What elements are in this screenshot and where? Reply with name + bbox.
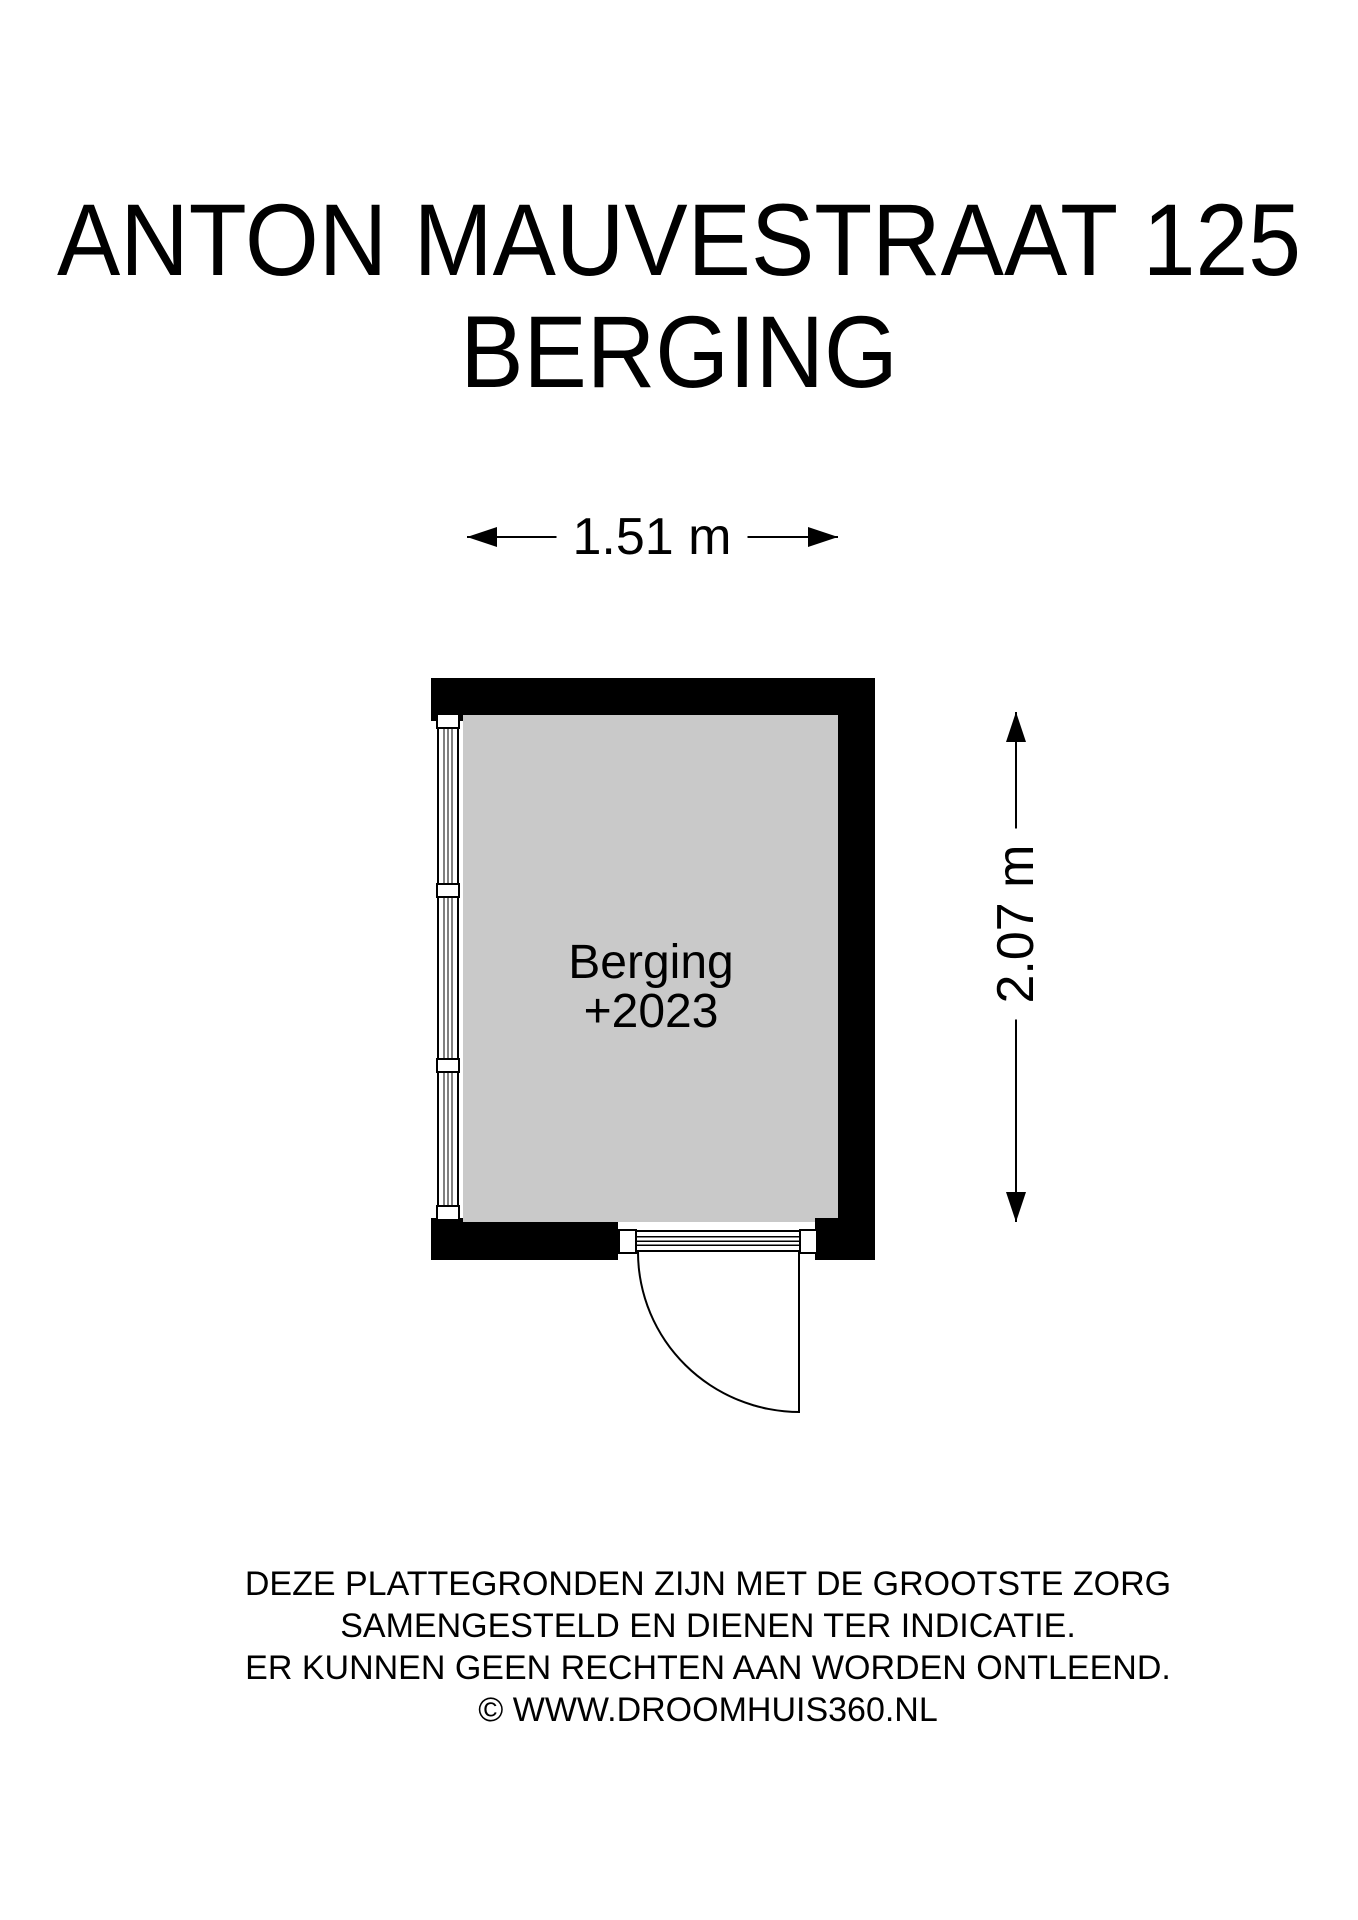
title-room-type: BERGING — [48, 296, 1311, 408]
window-frame-bottom-cap — [436, 1205, 460, 1221]
window-glazing-middle — [437, 898, 459, 1058]
disclaimer: DEZE PLATTEGRONDEN ZIJN MET DE GROOTSTE … — [245, 1563, 1171, 1731]
page-title: ANTON MAUVESTRAAT 125 BERGING — [48, 184, 1311, 408]
door-post-right — [799, 1229, 818, 1254]
arrow-down-icon — [1006, 1192, 1026, 1222]
wall-right — [838, 678, 875, 1260]
door-post-left — [618, 1229, 637, 1254]
arrow-left-icon — [467, 527, 497, 547]
disclaimer-line-3: ER KUNNEN GEEN RECHTEN AAN WORDEN ONTLEE… — [245, 1647, 1171, 1689]
window-glazing-lower — [437, 1073, 459, 1205]
disclaimer-line-2: SAMENGESTELD EN DIENEN TER INDICATIE. — [245, 1605, 1171, 1647]
window-mullion-lower — [436, 1058, 460, 1073]
window-glazing-upper — [437, 729, 459, 883]
window-mullion-upper — [436, 883, 460, 898]
wall-corner-bottom-left — [431, 1218, 463, 1260]
room-level: +2023 — [568, 987, 733, 1036]
wall-bottom-right — [815, 1218, 875, 1260]
arrow-up-icon — [1006, 712, 1026, 742]
disclaimer-copyright: © WWW.DROOMHUIS360.NL — [245, 1689, 1171, 1731]
disclaimer-line-1: DEZE PLATTEGRONDEN ZIJN MET DE GROOTSTE … — [245, 1563, 1171, 1605]
height-dimension-label: 2.07 m — [987, 829, 1045, 1020]
room-label: Berging +2023 — [568, 938, 733, 1036]
wall-top — [431, 678, 875, 715]
floorplan-page: ANTON MAUVESTRAAT 125 BERGING 1.51 m 2.0… — [0, 0, 1358, 1920]
window-frame-top-cap — [436, 713, 460, 729]
door-threshold — [637, 1230, 799, 1252]
arrow-right-icon — [808, 527, 838, 547]
width-dimension-label: 1.51 m — [557, 508, 748, 566]
room-name: Berging — [568, 938, 733, 987]
title-address: ANTON MAUVESTRAAT 125 — [48, 184, 1311, 296]
door-swing-arc — [637, 1252, 800, 1413]
